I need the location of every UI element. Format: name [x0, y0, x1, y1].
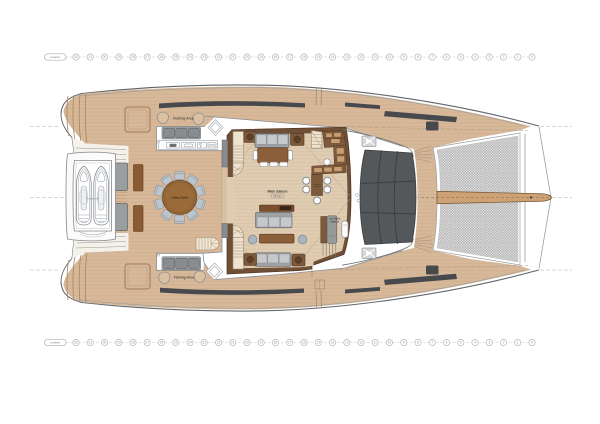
svg-text:28: 28 — [131, 55, 135, 59]
svg-text:30: 30 — [103, 341, 107, 345]
svg-text:32: 32 — [74, 55, 78, 59]
svg-text:station: station — [331, 220, 340, 224]
svg-text:11: 11 — [374, 341, 378, 345]
svg-text:18: 18 — [274, 341, 278, 345]
svg-text:Main Saloon: Main Saloon — [268, 190, 288, 194]
svg-text:27: 27 — [145, 341, 149, 345]
svg-text:20: 20 — [245, 341, 249, 345]
svg-text:31: 31 — [88, 55, 92, 59]
svg-text:3: 3 — [488, 55, 490, 59]
svg-text:13: 13 — [345, 55, 349, 59]
svg-text:21: 21 — [231, 341, 235, 345]
svg-text:4: 4 — [474, 55, 476, 59]
svg-text:29: 29 — [117, 55, 121, 59]
svg-text:3: 3 — [488, 341, 490, 345]
svg-text:9: 9 — [403, 55, 405, 59]
svg-text:22: 22 — [217, 341, 221, 345]
svg-text:23: 23 — [202, 55, 206, 59]
svg-text:31: 31 — [88, 341, 92, 345]
svg-text:24: 24 — [188, 341, 192, 345]
svg-text:16: 16 — [302, 55, 306, 59]
svg-text:23: 23 — [202, 341, 206, 345]
svg-text:15: 15 — [316, 341, 320, 345]
svg-text:25: 25 — [174, 341, 178, 345]
svg-text:7: 7 — [431, 341, 433, 345]
svg-text:17: 17 — [288, 341, 292, 345]
svg-text:26: 26 — [160, 55, 164, 59]
svg-text:25: 25 — [174, 55, 178, 59]
svg-text:5: 5 — [460, 55, 462, 59]
svg-text:18: 18 — [274, 55, 278, 59]
svg-text:26: 26 — [160, 341, 164, 345]
svg-text:8: 8 — [417, 341, 419, 345]
svg-text:27: 27 — [145, 55, 149, 59]
svg-text:Fishing Area: Fishing Area — [173, 117, 194, 121]
svg-text:0: 0 — [531, 55, 533, 59]
svg-text:14: 14 — [331, 341, 335, 345]
svg-text:Fishing Area: Fishing Area — [174, 276, 195, 280]
svg-text:metres: metres — [50, 341, 60, 345]
svg-text:11: 11 — [374, 55, 378, 59]
svg-text:8: 8 — [417, 55, 419, 59]
svg-text:12: 12 — [359, 55, 363, 59]
svg-text:5: 5 — [460, 341, 462, 345]
svg-text:10: 10 — [388, 55, 392, 59]
svg-text:4: 4 — [474, 341, 476, 345]
svg-text:1: 1 — [517, 55, 519, 59]
svg-text:2: 2 — [503, 341, 505, 345]
svg-text:29: 29 — [117, 341, 121, 345]
svg-text:13: 13 — [345, 341, 349, 345]
svg-text:32: 32 — [74, 341, 78, 345]
svg-text:14: 14 — [331, 55, 335, 59]
svg-text:12: 12 — [359, 341, 363, 345]
svg-text:9: 9 — [403, 341, 405, 345]
svg-text:1: 1 — [517, 341, 519, 345]
svg-text:10: 10 — [388, 341, 392, 345]
svg-text:20: 20 — [245, 55, 249, 59]
svg-text:21: 21 — [231, 55, 235, 59]
svg-text:19: 19 — [259, 55, 263, 59]
svg-text:2: 2 — [503, 55, 505, 59]
svg-text:17: 17 — [288, 55, 292, 59]
svg-text:6: 6 — [446, 55, 448, 59]
svg-text:16: 16 — [302, 341, 306, 345]
svg-text:19: 19 — [259, 341, 263, 345]
svg-text:Tenders lift: Tenders lift — [86, 196, 99, 200]
svg-text:15: 15 — [316, 55, 320, 59]
svg-text:7: 7 — [431, 55, 433, 59]
svg-text:30: 30 — [103, 55, 107, 59]
svg-text:22: 22 — [217, 55, 221, 59]
svg-text:55 sqm: 55 sqm — [274, 195, 282, 198]
svg-text:metres: metres — [50, 55, 60, 59]
svg-text:0: 0 — [531, 341, 533, 345]
svg-text:Lifting Table: Lifting Table — [171, 195, 188, 199]
svg-text:28: 28 — [131, 341, 135, 345]
svg-text:24: 24 — [188, 55, 192, 59]
svg-text:6: 6 — [446, 341, 448, 345]
